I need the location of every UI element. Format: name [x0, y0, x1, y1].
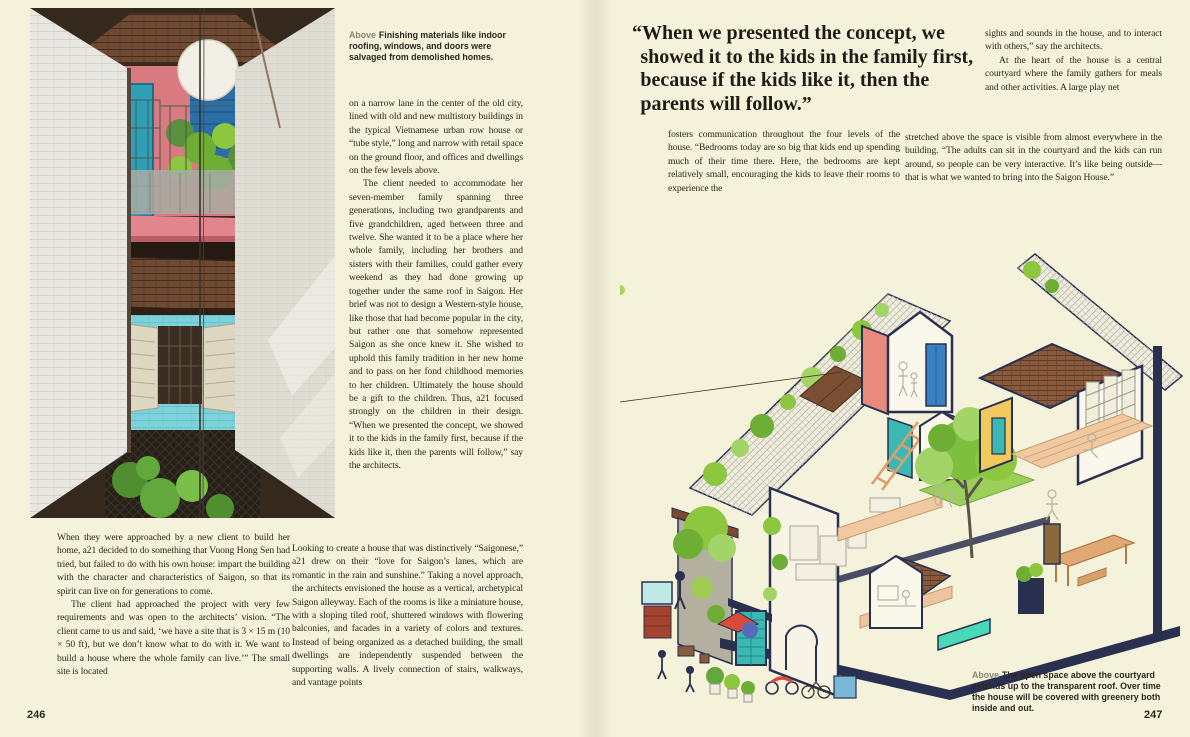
wood-table — [1050, 535, 1134, 566]
figure-right — [1046, 490, 1058, 520]
right-column: sights and sounds in the house, and to i… — [985, 27, 1162, 94]
planter-box — [1018, 578, 1044, 614]
caption-label: Above — [972, 670, 1002, 680]
wooden-door — [1044, 524, 1060, 564]
mid-column-p2: The client needed to accommodate her sev… — [349, 177, 523, 472]
bottom-wide-p1: Looking to create a house that was disti… — [292, 542, 523, 689]
courtyard-photo-illustration — [30, 8, 335, 518]
bottom-left-p2: The client had approached the project wi… — [57, 598, 290, 678]
page-number-right: 247 — [1144, 709, 1162, 721]
right-column-p2: At the heart of the house is a central c… — [985, 54, 1162, 94]
teal-room-door — [992, 418, 1005, 454]
illustration-caption: AboveThe open space above the courtyard … — [972, 670, 1162, 714]
page-gutter — [578, 0, 612, 737]
quote-left-column: fosters communication throughout the fou… — [668, 128, 900, 195]
courtyard-photo — [30, 8, 335, 518]
mid-column-p1: on a narrow lane in the center of the ol… — [349, 97, 523, 177]
bottom-left-p1: When they were approached by a new clien… — [57, 531, 290, 598]
salmon-wall — [862, 326, 888, 414]
caption-label: Above — [349, 30, 379, 40]
right-wide-column: stretched above the space is visible fro… — [905, 131, 1162, 185]
bottom-left-column: When they were approached by a new clien… — [57, 531, 290, 678]
photo-caption: AboveFinishing materials like indoor roo… — [349, 30, 527, 63]
mid-column: on a narrow lane in the center of the ol… — [349, 97, 523, 472]
quote-left-p1: fosters communication throughout the fou… — [668, 128, 900, 195]
isometric-cutaway — [620, 226, 1185, 704]
page-number-left: 246 — [27, 709, 45, 721]
right-wide-p1: stretched above the space is visible fro… — [905, 131, 1162, 185]
bottom-wide-column: Looking to create a house that was disti… — [292, 542, 523, 689]
book-spread: AboveFinishing materials like indoor roo… — [0, 0, 1190, 737]
balloon-lamp — [178, 40, 238, 100]
pull-quote: “When we presented the concept, we showe… — [632, 22, 976, 116]
aqua-bench — [938, 619, 990, 650]
isometric-cutaway-illustration — [620, 226, 1185, 704]
right-column-p1: sights and sounds in the house, and to i… — [985, 27, 1162, 54]
